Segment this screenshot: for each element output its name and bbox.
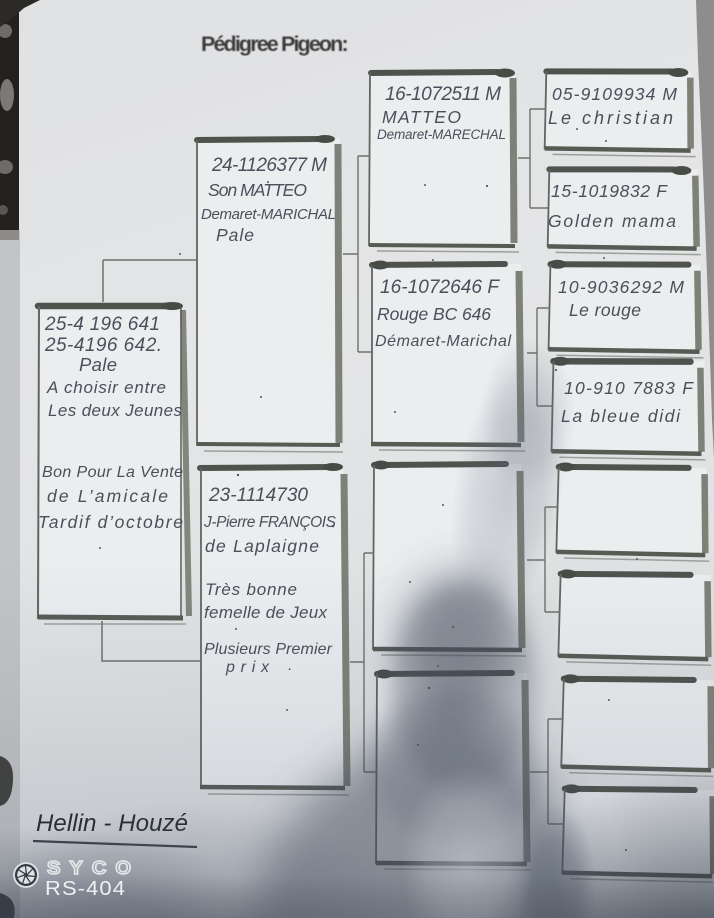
svg-text:Pédigree Pigeon:: Pédigree Pigeon: (201, 32, 348, 56)
svg-text:15-1019832 F: 15-1019832 F (551, 181, 668, 201)
svg-text:de Laplaigne: de Laplaigne (205, 536, 320, 556)
svg-text:Pale: Pale (79, 354, 118, 375)
svg-text:Golden mama: Golden mama (548, 211, 677, 231)
svg-text:10-910 7883 F: 10-910 7883 F (564, 378, 694, 398)
svg-text:Démaret-Marichal: Démaret-Marichal (375, 333, 512, 350)
svg-text:A choisir entre: A choisir entre (46, 378, 167, 397)
svg-text:Bon Pour La Vente: Bon Pour La Vente (42, 464, 184, 481)
svg-text:Le rouge: Le rouge (569, 300, 642, 320)
svg-text:Le christian: Le christian (548, 108, 674, 128)
svg-text:Pale: Pale (216, 225, 255, 245)
svg-text:Les deux Jeunes: Les deux Jeunes (48, 401, 183, 420)
svg-text:16-1072646 F: 16-1072646 F (380, 277, 500, 298)
svg-text:25-4 196 641: 25-4 196 641 (44, 314, 161, 335)
svg-text:24-1126377 M: 24-1126377 M (211, 155, 328, 176)
svg-text:SYCO: SYCO (47, 858, 140, 878)
svg-text:La bleue didi: La bleue didi (561, 406, 681, 426)
svg-text:10-9036292 M: 10-9036292 M (558, 277, 685, 297)
svg-text:Demaret-MARICHAL: Demaret-MARICHAL (201, 206, 337, 223)
svg-text:J-Pierre FRANÇOIS: J-Pierre FRANÇOIS (203, 514, 337, 531)
svg-text:MATTEO: MATTEO (382, 107, 462, 127)
svg-text:Rouge BC 646: Rouge BC 646 (377, 304, 492, 324)
svg-text:25-4196 642.: 25-4196 642. (44, 335, 163, 356)
svg-text:RS-404: RS-404 (45, 878, 126, 900)
svg-text:23-1114730: 23-1114730 (208, 485, 309, 506)
svg-text:16-1072511 M: 16-1072511 M (385, 84, 502, 105)
svg-text:05-9109934 M: 05-9109934 M (552, 84, 678, 104)
svg-text:Demaret-MARECHAL: Demaret-MARECHAL (377, 127, 507, 142)
svg-text:Tardif d’octobre: Tardif d’octobre (38, 512, 184, 532)
svg-text:de L’amicale: de L’amicale (47, 486, 169, 506)
svg-text:Son MATTEO: Son MATTEO (208, 180, 308, 200)
